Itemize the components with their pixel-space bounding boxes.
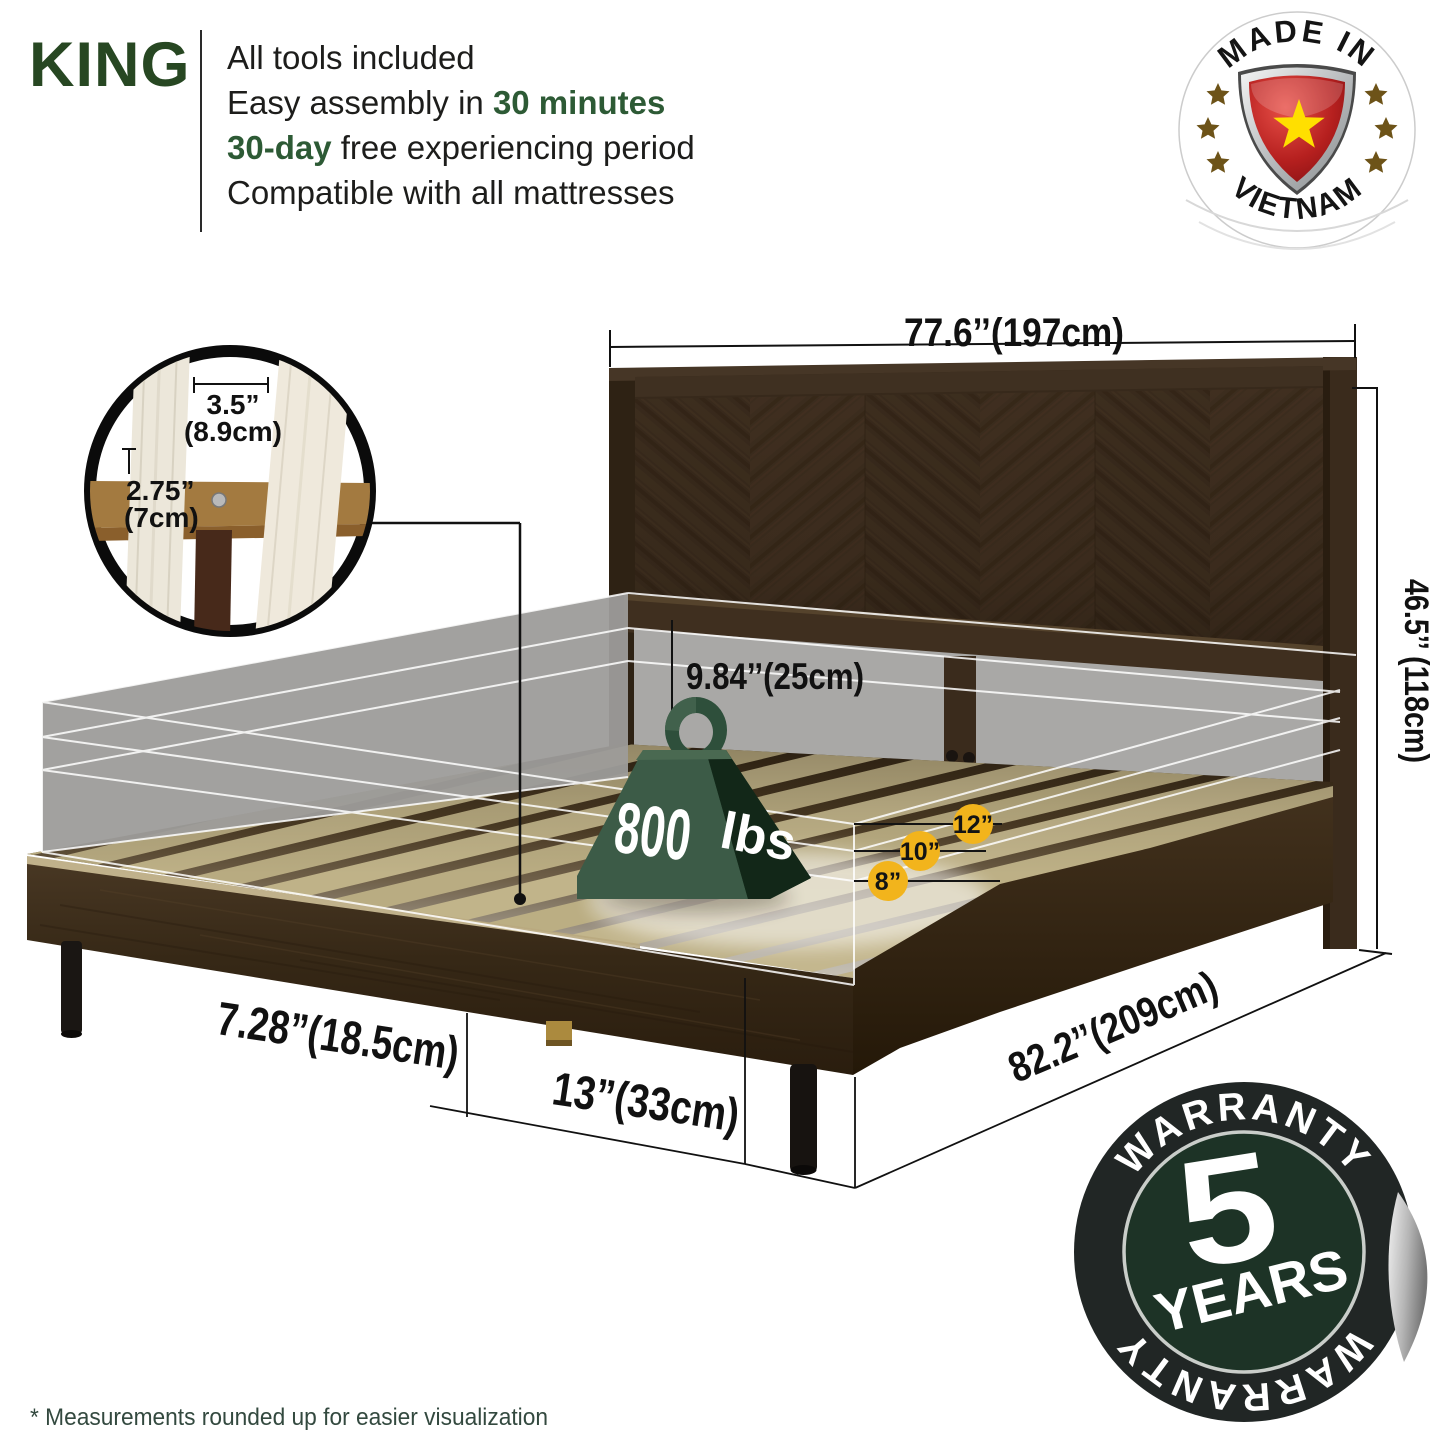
svg-text:9.84’’(25cm): 9.84’’(25cm) <box>686 656 864 697</box>
svg-text:30-day free experiencing perio: 30-day free experiencing period <box>227 129 695 166</box>
svg-text:46.5’’ (118cm): 46.5’’ (118cm) <box>1397 579 1435 763</box>
svg-text:Compatible with all mattresses: Compatible with all mattresses <box>227 174 675 211</box>
svg-text:* Measurements rounded up for: * Measurements rounded up for easier vis… <box>30 1404 548 1431</box>
svg-text:KING: KING <box>29 30 191 100</box>
svg-text:10”: 10” <box>900 838 940 866</box>
svg-text:800: 800 <box>610 788 695 877</box>
svg-text:(8.9cm): (8.9cm) <box>184 416 282 447</box>
svg-text:12”: 12” <box>953 811 993 839</box>
svg-text:(7cm): (7cm) <box>124 502 199 533</box>
svg-text:8”: 8” <box>875 868 901 896</box>
svg-text:77.6’’(197cm): 77.6’’(197cm) <box>904 311 1124 355</box>
svg-text:Easy assembly in 30 minutes: Easy assembly in 30 minutes <box>227 84 665 121</box>
svg-text:All tools included: All tools included <box>227 39 475 76</box>
